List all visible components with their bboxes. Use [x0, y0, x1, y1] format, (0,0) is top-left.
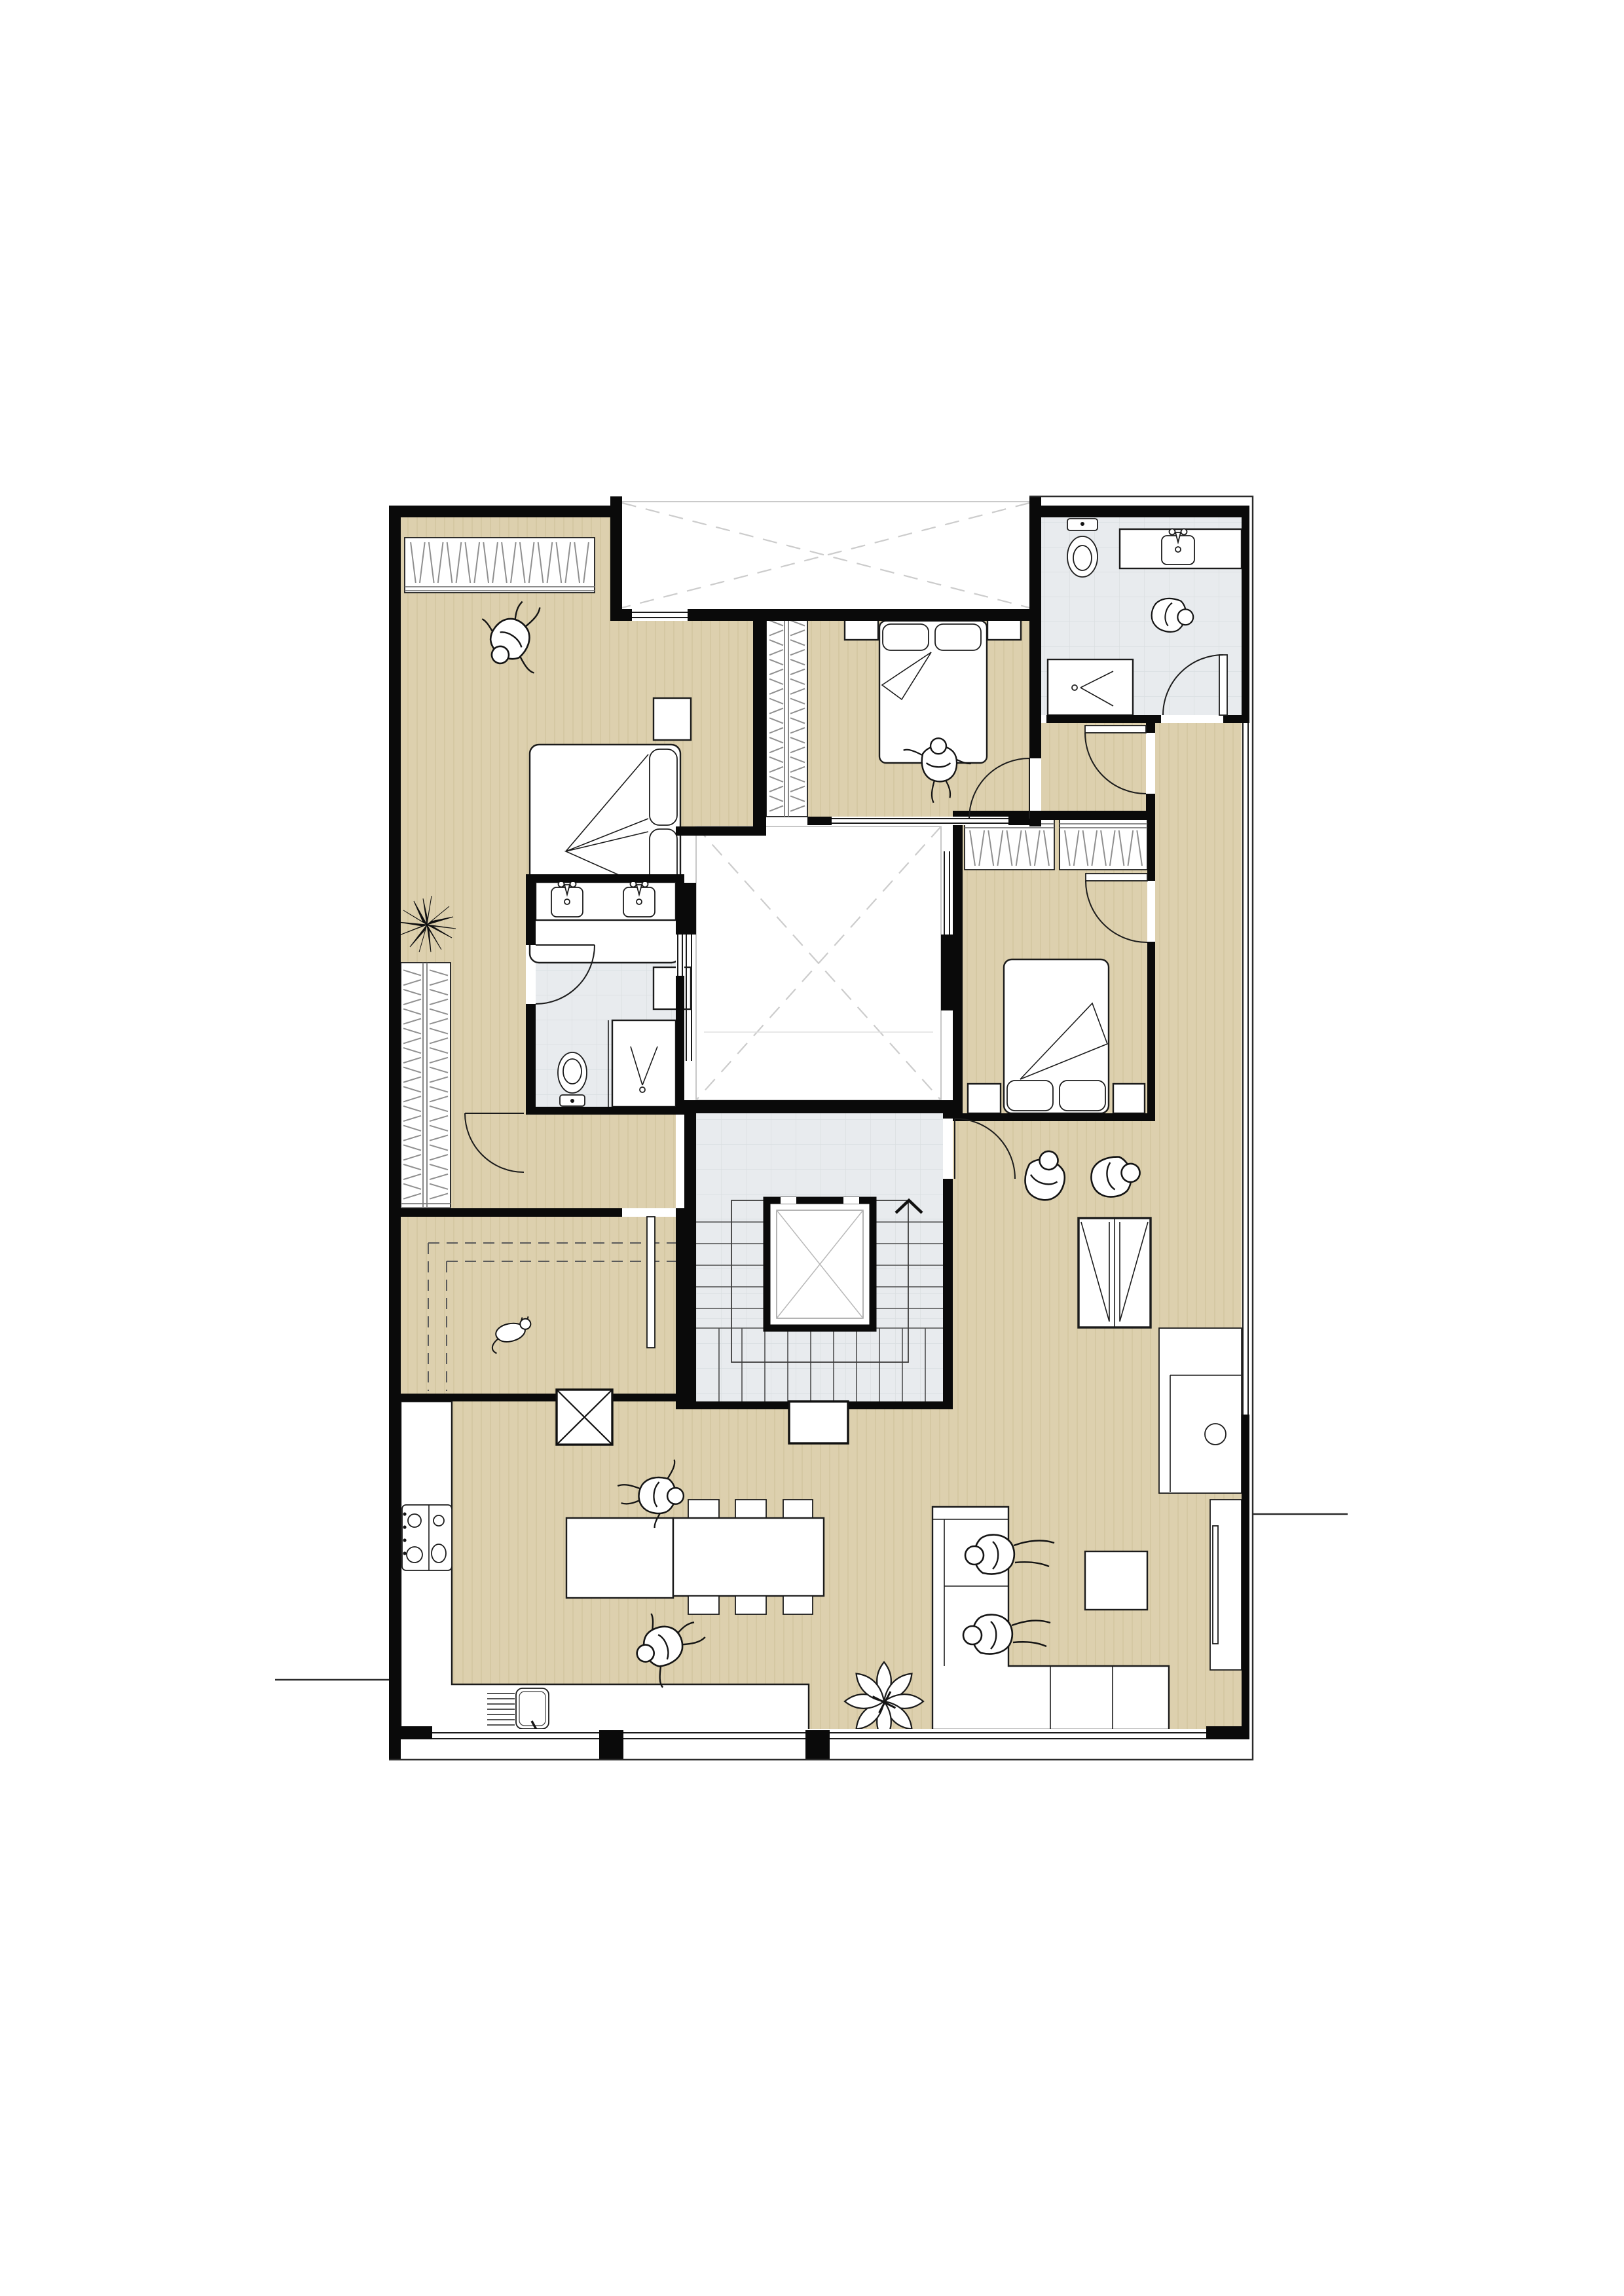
- window-mullion: [805, 1730, 830, 1760]
- floor-plan-drawing: [0, 0, 1624, 2296]
- courtyard-center: [696, 826, 941, 1100]
- coffee-table: [1085, 1551, 1147, 1610]
- chair-icon: [688, 1500, 719, 1518]
- chair-icon: [735, 1596, 766, 1614]
- wardrobe-hangers-side: [401, 963, 451, 1208]
- closet-hangers-icon: [1060, 819, 1147, 870]
- floor-vestibule: [451, 1113, 676, 1208]
- chair-icon: [783, 1500, 813, 1518]
- stair-stub-wall: [789, 1401, 848, 1443]
- stool-icon: [1205, 1424, 1226, 1445]
- toilet-icon: [558, 1052, 587, 1106]
- wardrobe-hangers-top: [405, 538, 595, 593]
- desk-with-stool: [1159, 1328, 1242, 1493]
- shower-icon: [1048, 659, 1133, 715]
- bedroom2-courtyard-window: [832, 817, 1008, 825]
- elevator-icon: [767, 1197, 873, 1328]
- nightstand-icon: [1113, 1084, 1145, 1113]
- drying-rack-icon: [487, 1694, 515, 1725]
- floor-corridor-east: [1155, 723, 1242, 1116]
- chair-icon: [783, 1596, 813, 1614]
- two-door-cabinet-icon: [1079, 1218, 1151, 1327]
- floor-nook: [1041, 723, 1146, 811]
- pivot-door-leaf: [647, 1217, 655, 1348]
- cooktop-4-burner-icon: [402, 1505, 452, 1570]
- lightwell-north: [622, 496, 1029, 609]
- tv-console-icon: [1210, 1500, 1242, 1670]
- dining-table: [673, 1518, 824, 1596]
- wardrobe-hangers-divider: [766, 614, 807, 817]
- lightwell-window: [632, 609, 688, 621]
- chair-icon: [688, 1596, 719, 1614]
- shower-icon: [608, 1020, 676, 1107]
- kitchen-island: [566, 1518, 673, 1598]
- nightstand-icon: [654, 698, 691, 740]
- window-mullion: [599, 1730, 623, 1760]
- nightstand-icon: [654, 967, 691, 1009]
- bathroom2-courtyard-window: [676, 935, 684, 976]
- chair-icon: [735, 1500, 766, 1518]
- double-bed-icon: [1004, 959, 1109, 1113]
- structural-column-x: [557, 1390, 612, 1445]
- double-bed-icon: [530, 745, 680, 963]
- nightstand-icon: [968, 1084, 1001, 1113]
- floor-plan-page: [0, 0, 1624, 2296]
- toilet-icon: [1067, 519, 1098, 577]
